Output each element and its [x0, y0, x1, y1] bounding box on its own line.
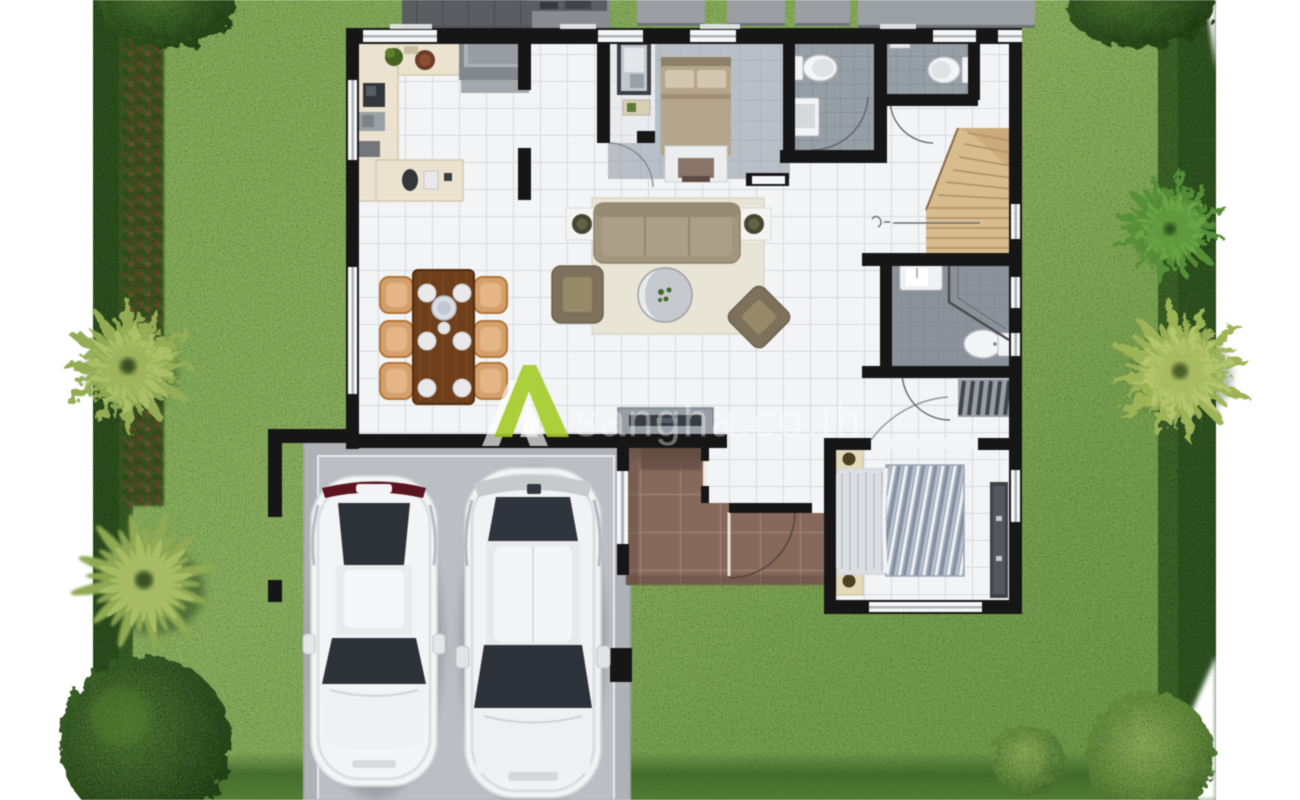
svg-text:sangha.co.th: sangha.co.th: [575, 394, 862, 446]
